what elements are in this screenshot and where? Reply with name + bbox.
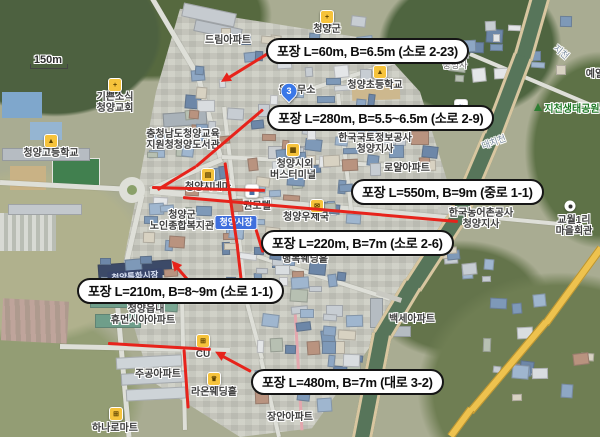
building xyxy=(226,108,243,121)
building xyxy=(326,77,341,84)
label-lx-line2: 청양지사 xyxy=(357,145,394,155)
building xyxy=(304,138,323,152)
wedding-hall-icon: ♛ xyxy=(207,372,221,386)
school-icon: ▲ xyxy=(373,65,387,79)
building xyxy=(360,69,372,81)
label-royal-apartment: 로얄아파트 xyxy=(384,164,430,174)
building xyxy=(322,154,340,167)
building xyxy=(323,326,337,337)
building xyxy=(531,62,545,69)
building xyxy=(422,145,439,159)
label-krc-line1: 한국농어촌공사 xyxy=(449,209,513,219)
cinema-icon: ▤ xyxy=(201,168,215,182)
store-cart-icon: ⊞ xyxy=(109,407,123,421)
building xyxy=(512,302,523,314)
label-baekse-apartment: 백세아파트 xyxy=(389,315,435,325)
building xyxy=(262,313,280,328)
building xyxy=(290,288,308,302)
church-icon: + xyxy=(108,78,122,92)
building xyxy=(262,134,277,141)
label-jangan-apartment: 장안아파트 xyxy=(267,413,313,423)
school-icon: ▲ xyxy=(44,134,58,148)
label-raon-wedding-hall: 라온웨딩홀 xyxy=(191,388,237,398)
building xyxy=(247,158,258,172)
label-jugong-apartment: 주공아파트 xyxy=(135,370,181,380)
label-welfare-line2: 노인종합복지관 xyxy=(150,222,214,232)
building xyxy=(100,258,111,266)
building xyxy=(472,67,488,82)
building xyxy=(309,286,322,293)
label-high-school: 청양고등학교 xyxy=(23,149,78,159)
label-bus-terminal-line2: 버스터미널 xyxy=(270,171,316,181)
building xyxy=(351,15,368,28)
label-krc-line2: 청양지사 xyxy=(463,220,500,230)
village-hall-icon xyxy=(565,201,576,212)
label-education-office-line2: 지원청청양도서관 xyxy=(146,141,220,151)
roundabout xyxy=(119,177,145,203)
building xyxy=(317,96,335,103)
label-cheongyang-gun: 청양군 xyxy=(313,25,341,35)
label-humansia-line1: 청양읍내 xyxy=(128,305,165,315)
annotation-box-daero-3-2: 포장 L=480m, B=7m (대로 3-2) xyxy=(251,369,444,395)
building xyxy=(560,384,573,398)
building xyxy=(345,315,362,327)
building xyxy=(194,66,203,76)
building xyxy=(304,67,313,77)
building xyxy=(283,195,300,203)
building xyxy=(337,272,347,282)
building xyxy=(140,256,152,264)
building xyxy=(532,293,546,307)
label-bus-terminal-line1: 청양시외 xyxy=(277,160,314,170)
apartment-block xyxy=(116,354,183,369)
building xyxy=(490,43,503,50)
building xyxy=(275,265,290,275)
building xyxy=(147,152,159,159)
label-post-office: 청양우체국 xyxy=(283,213,329,223)
building xyxy=(189,109,200,119)
building xyxy=(512,394,523,401)
building xyxy=(197,100,215,112)
label-cu-store: CU xyxy=(196,350,210,360)
building xyxy=(508,24,521,31)
building xyxy=(285,345,296,354)
building xyxy=(484,259,495,271)
satellite-map-canvas[interactable]: + + ▲ ▲ ▦ ▤ ▄ ✉ ♛ ♛ ⊞ ⊞ ≈ 3 150m 드림아파트 청… xyxy=(0,0,600,437)
building xyxy=(461,262,478,275)
annotation-box-soro-2-6: 포장 L=220m, B=7m (소로 2-6) xyxy=(261,230,454,256)
building xyxy=(333,65,349,80)
label-yeil: 예일 xyxy=(586,70,600,80)
building xyxy=(307,340,321,354)
building xyxy=(256,268,268,274)
building xyxy=(346,213,361,224)
building xyxy=(269,190,282,198)
building xyxy=(482,276,491,283)
building xyxy=(483,338,491,352)
building xyxy=(343,354,361,367)
label-church-line1: 기쁜소식 xyxy=(97,93,134,103)
scale-bar xyxy=(30,64,68,69)
store-cart-icon: ⊞ xyxy=(196,334,210,348)
building xyxy=(296,321,312,332)
building xyxy=(196,206,212,217)
annotation-box-soro-2-9: 포장 L=280m, B=5.5~6.5m (소로 2-9) xyxy=(267,105,494,131)
building xyxy=(269,337,283,351)
building xyxy=(323,313,337,321)
label-gyowol-line1: 교월1리 xyxy=(557,216,590,226)
building xyxy=(251,120,264,130)
annotation-box-jungro-1-1: 포장 L=550m, B=9m (중로 1-1) xyxy=(351,179,544,205)
building xyxy=(532,368,548,379)
building xyxy=(370,163,382,176)
building xyxy=(169,235,186,248)
building xyxy=(270,95,278,105)
label-eco-park: 지천생태공원 xyxy=(544,105,599,115)
building xyxy=(338,329,356,340)
bus-terminal-icon: ▦ xyxy=(286,143,300,157)
label-hanaro-mart: 하나로마트 xyxy=(92,424,138,434)
label-happy-wedding-hall: 행복웨딩홀 xyxy=(282,255,328,265)
building xyxy=(300,309,314,318)
building xyxy=(143,232,156,244)
label-church-line2: 청양교회 xyxy=(97,104,134,114)
label-education-office-line1: 충청남도청양교육 xyxy=(146,130,220,140)
apartment-block xyxy=(126,386,187,401)
building xyxy=(556,65,566,75)
label-humansia-line2: 휴먼시아아파트 xyxy=(111,316,175,326)
annotation-box-soro-2-23: 포장 L=60m, B=6.5m (소로 2-23) xyxy=(266,38,469,64)
medical-center-icon: + xyxy=(320,10,334,24)
building xyxy=(322,341,337,354)
building xyxy=(493,34,501,42)
building xyxy=(489,298,507,310)
label-dream-apartment: 드림아파트 xyxy=(205,36,251,46)
park-tree-icon xyxy=(534,103,542,111)
building xyxy=(257,339,265,352)
building xyxy=(342,159,358,171)
building xyxy=(484,20,496,30)
school-building xyxy=(8,204,82,215)
annotation-box-soro-1-1: 포장 L=210m, B=8~9m (소로 1-1) xyxy=(77,278,284,304)
building xyxy=(327,355,335,368)
label-welfare-line1: 청양군 xyxy=(168,211,196,221)
building xyxy=(291,276,309,289)
label-elementary-school: 청양초등학교 xyxy=(347,81,402,91)
building xyxy=(411,131,429,145)
building xyxy=(560,16,572,27)
label-lx-line1: 한국국토정보공사 xyxy=(338,134,412,144)
building xyxy=(454,75,464,83)
building xyxy=(317,398,333,412)
label-gyowol-line2: 마을회관 xyxy=(556,227,593,237)
building xyxy=(572,352,590,366)
building xyxy=(196,86,208,99)
